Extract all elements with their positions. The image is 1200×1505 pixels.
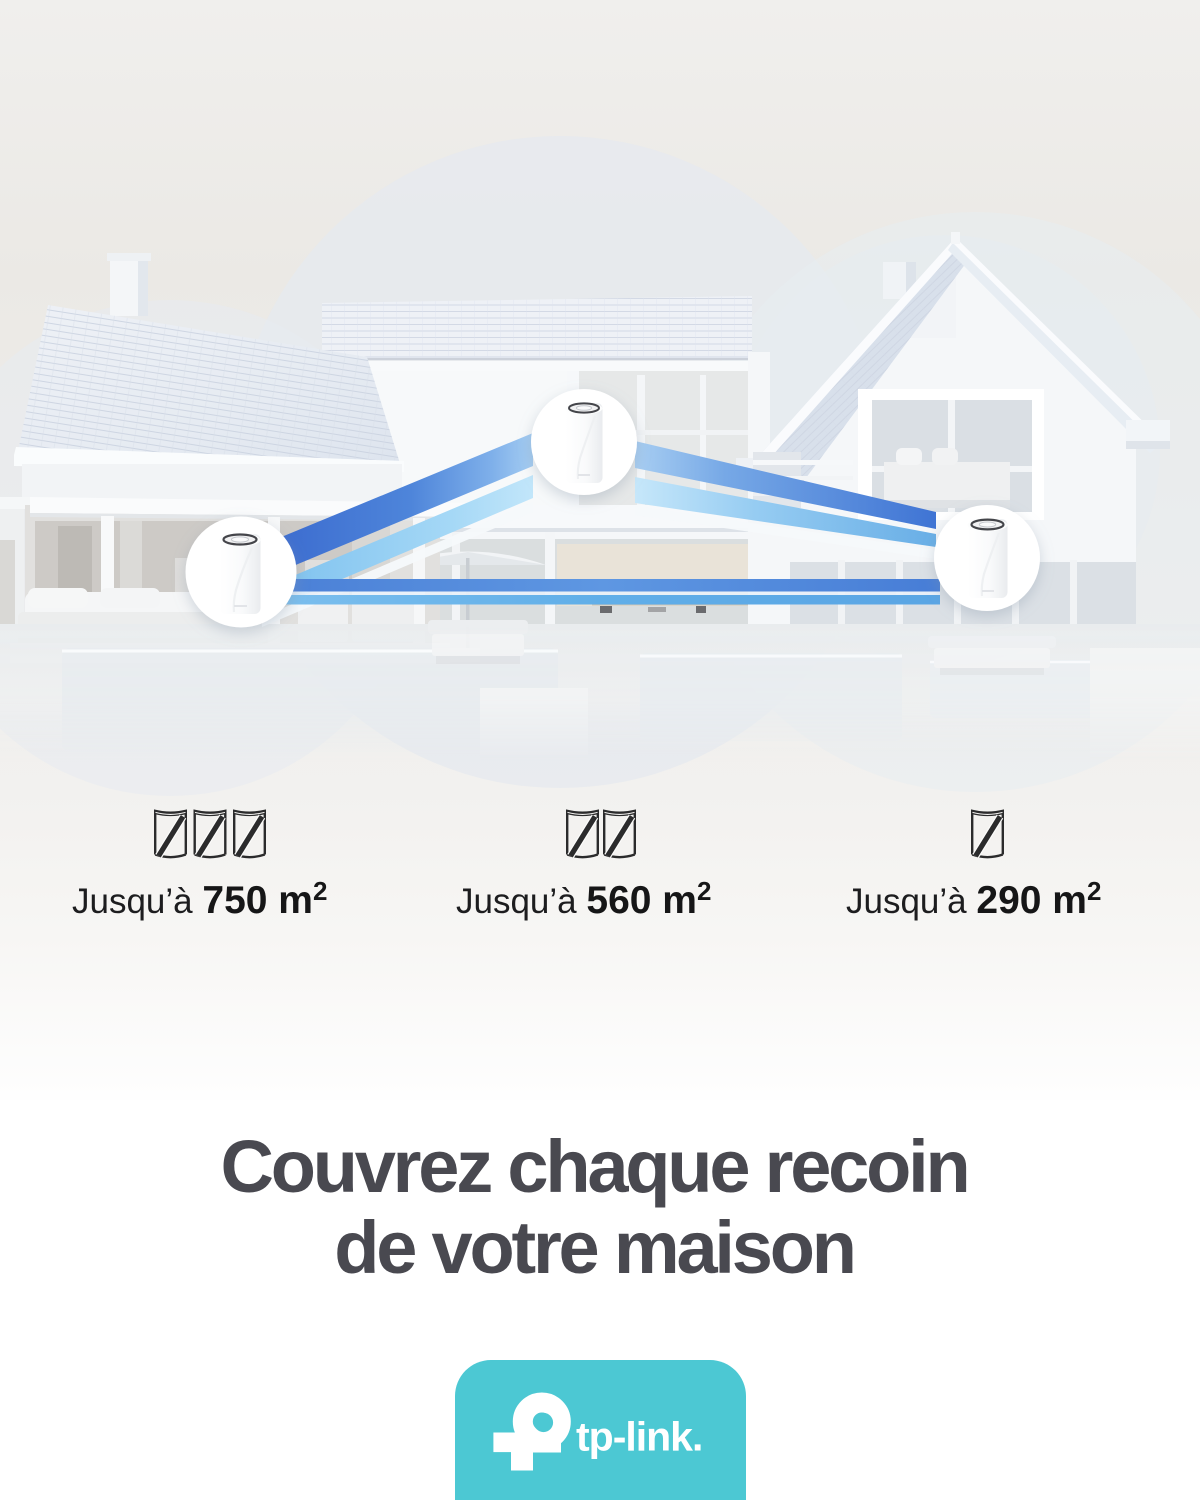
svg-text:tp-link.: tp-link. — [576, 1414, 702, 1460]
